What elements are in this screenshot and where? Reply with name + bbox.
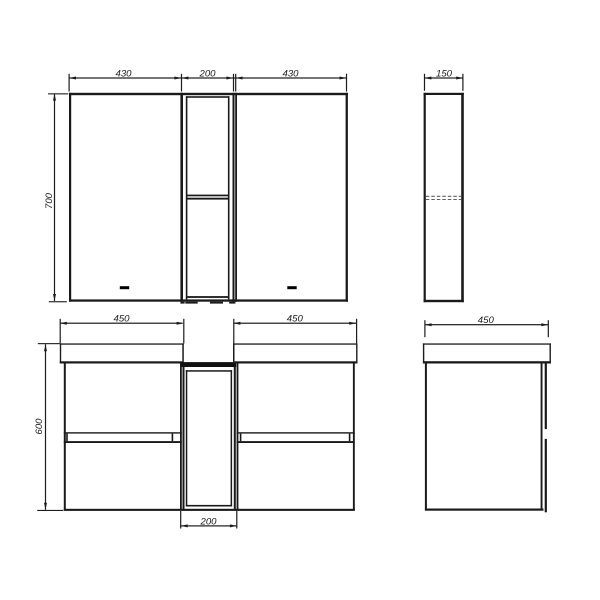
svg-text:450: 450	[478, 315, 495, 326]
svg-text:200: 200	[199, 516, 217, 527]
svg-text:430: 430	[282, 69, 299, 80]
svg-text:200: 200	[198, 69, 216, 80]
svg-text:430: 430	[115, 69, 132, 80]
svg-text:150: 150	[436, 69, 453, 80]
svg-text:600: 600	[34, 418, 45, 435]
svg-text:450: 450	[287, 314, 304, 325]
svg-text:450: 450	[113, 314, 130, 325]
svg-text:700: 700	[44, 192, 55, 209]
